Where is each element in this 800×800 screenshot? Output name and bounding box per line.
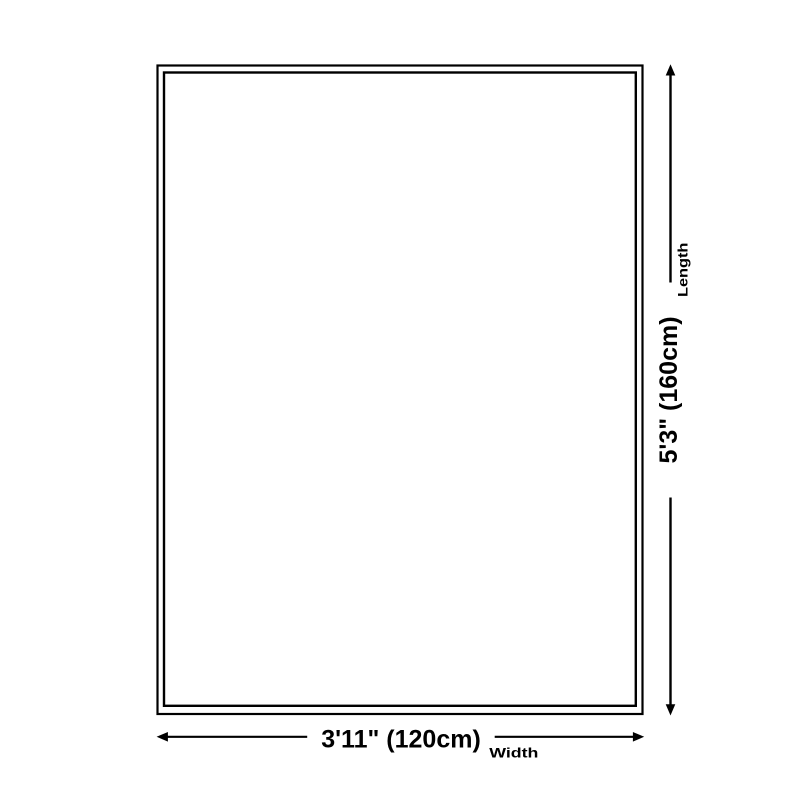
svg-text:3'11" (120cm): 3'11" (120cm) — [321, 726, 481, 754]
svg-text:Width: Width — [489, 746, 538, 761]
svg-text:5'3" (160cm): 5'3" (160cm) — [655, 316, 683, 463]
svg-text:Length: Length — [676, 243, 691, 297]
